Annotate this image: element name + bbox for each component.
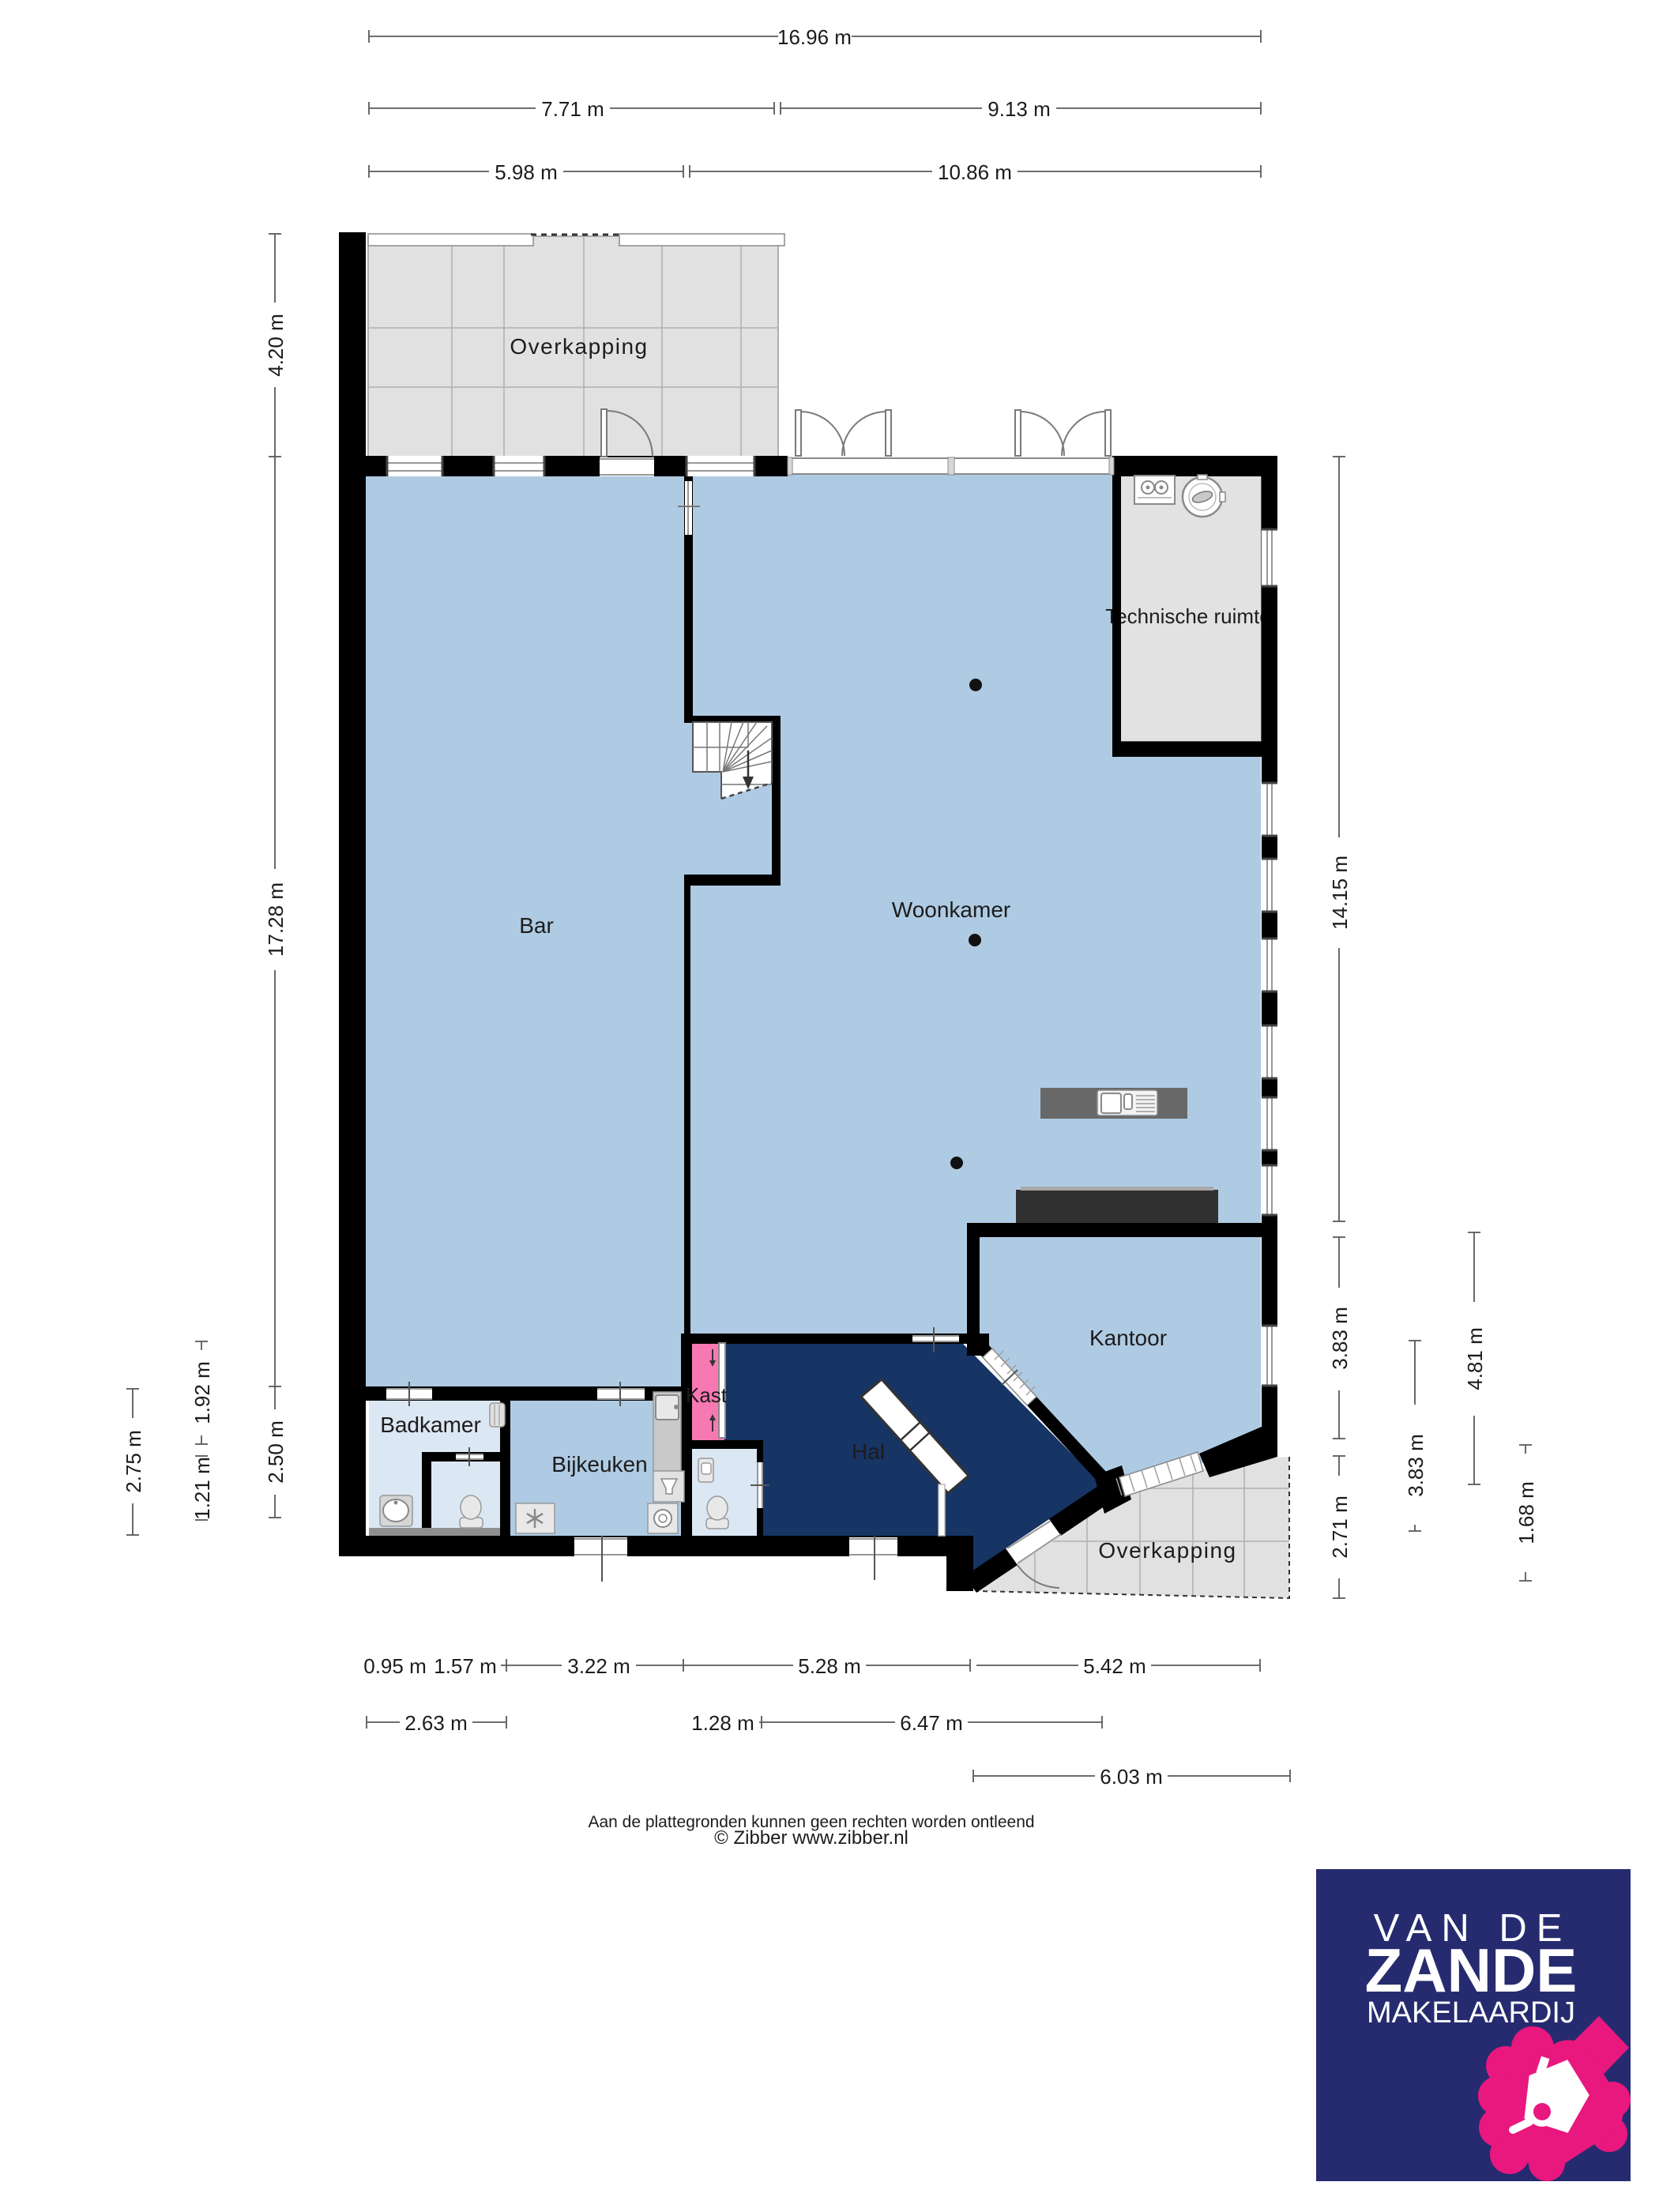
svg-text:Bijkeuken: Bijkeuken xyxy=(551,1452,647,1477)
svg-text:Badkamer: Badkamer xyxy=(380,1413,481,1437)
svg-text:3.83 m: 3.83 m xyxy=(1328,1307,1352,1370)
svg-text:6.03 m: 6.03 m xyxy=(1100,1765,1163,1789)
svg-text:Overkapping: Overkapping xyxy=(510,334,648,359)
svg-text:Technische ruimte: Technische ruimte xyxy=(1105,604,1271,628)
svg-text:9.13 m: 9.13 m xyxy=(987,97,1051,121)
svg-text:17.28 m: 17.28 m xyxy=(264,882,288,957)
svg-text:ZANDE: ZANDE xyxy=(1365,1935,1578,2005)
svg-text:MAKELAARDIJ: MAKELAARDIJ xyxy=(1367,1996,1575,2030)
svg-text:10.86 m: 10.86 m xyxy=(938,160,1012,184)
svg-text:7.71 m: 7.71 m xyxy=(541,97,604,121)
svg-text:Bar: Bar xyxy=(519,913,554,938)
svg-text:2.75 m: 2.75 m xyxy=(122,1430,145,1493)
svg-text:Hal: Hal xyxy=(852,1439,885,1464)
svg-text:Overkapping: Overkapping xyxy=(1098,1538,1236,1563)
svg-text:2.71 m: 2.71 m xyxy=(1328,1495,1352,1559)
svg-text:Kantoor: Kantoor xyxy=(1089,1326,1167,1350)
svg-text:5.98 m: 5.98 m xyxy=(495,160,558,184)
svg-text:5.28 m: 5.28 m xyxy=(798,1654,861,1678)
svg-text:1.68 m: 1.68 m xyxy=(1514,1481,1538,1544)
svg-text:1.57 m: 1.57 m xyxy=(434,1654,497,1678)
svg-text:2.50 m: 2.50 m xyxy=(264,1420,288,1484)
svg-text:4.81 m: 4.81 m xyxy=(1463,1327,1487,1390)
svg-text:1.92 m: 1.92 m xyxy=(190,1361,214,1424)
svg-text:14.15 m: 14.15 m xyxy=(1328,856,1352,930)
svg-text:5.42 m: 5.42 m xyxy=(1083,1654,1146,1678)
svg-text:Woonkamer: Woonkamer xyxy=(892,897,1010,922)
svg-text:0.95 m: 0.95 m xyxy=(363,1654,427,1678)
svg-text:© Zibber www.zibber.nl: © Zibber www.zibber.nl xyxy=(714,1827,908,1849)
svg-text:1.28 m: 1.28 m xyxy=(691,1711,754,1735)
svg-text:3.22 m: 3.22 m xyxy=(567,1654,630,1678)
svg-text:1.21 m: 1.21 m xyxy=(190,1457,214,1520)
svg-text:16.96 m: 16.96 m xyxy=(777,25,852,49)
svg-text:6.47 m: 6.47 m xyxy=(900,1711,963,1735)
svg-text:3.83 m: 3.83 m xyxy=(1404,1434,1428,1497)
svg-text:Kast: Kast xyxy=(686,1383,728,1407)
svg-text:4.20 m: 4.20 m xyxy=(264,314,288,377)
svg-text:2.63 m: 2.63 m xyxy=(404,1711,468,1735)
